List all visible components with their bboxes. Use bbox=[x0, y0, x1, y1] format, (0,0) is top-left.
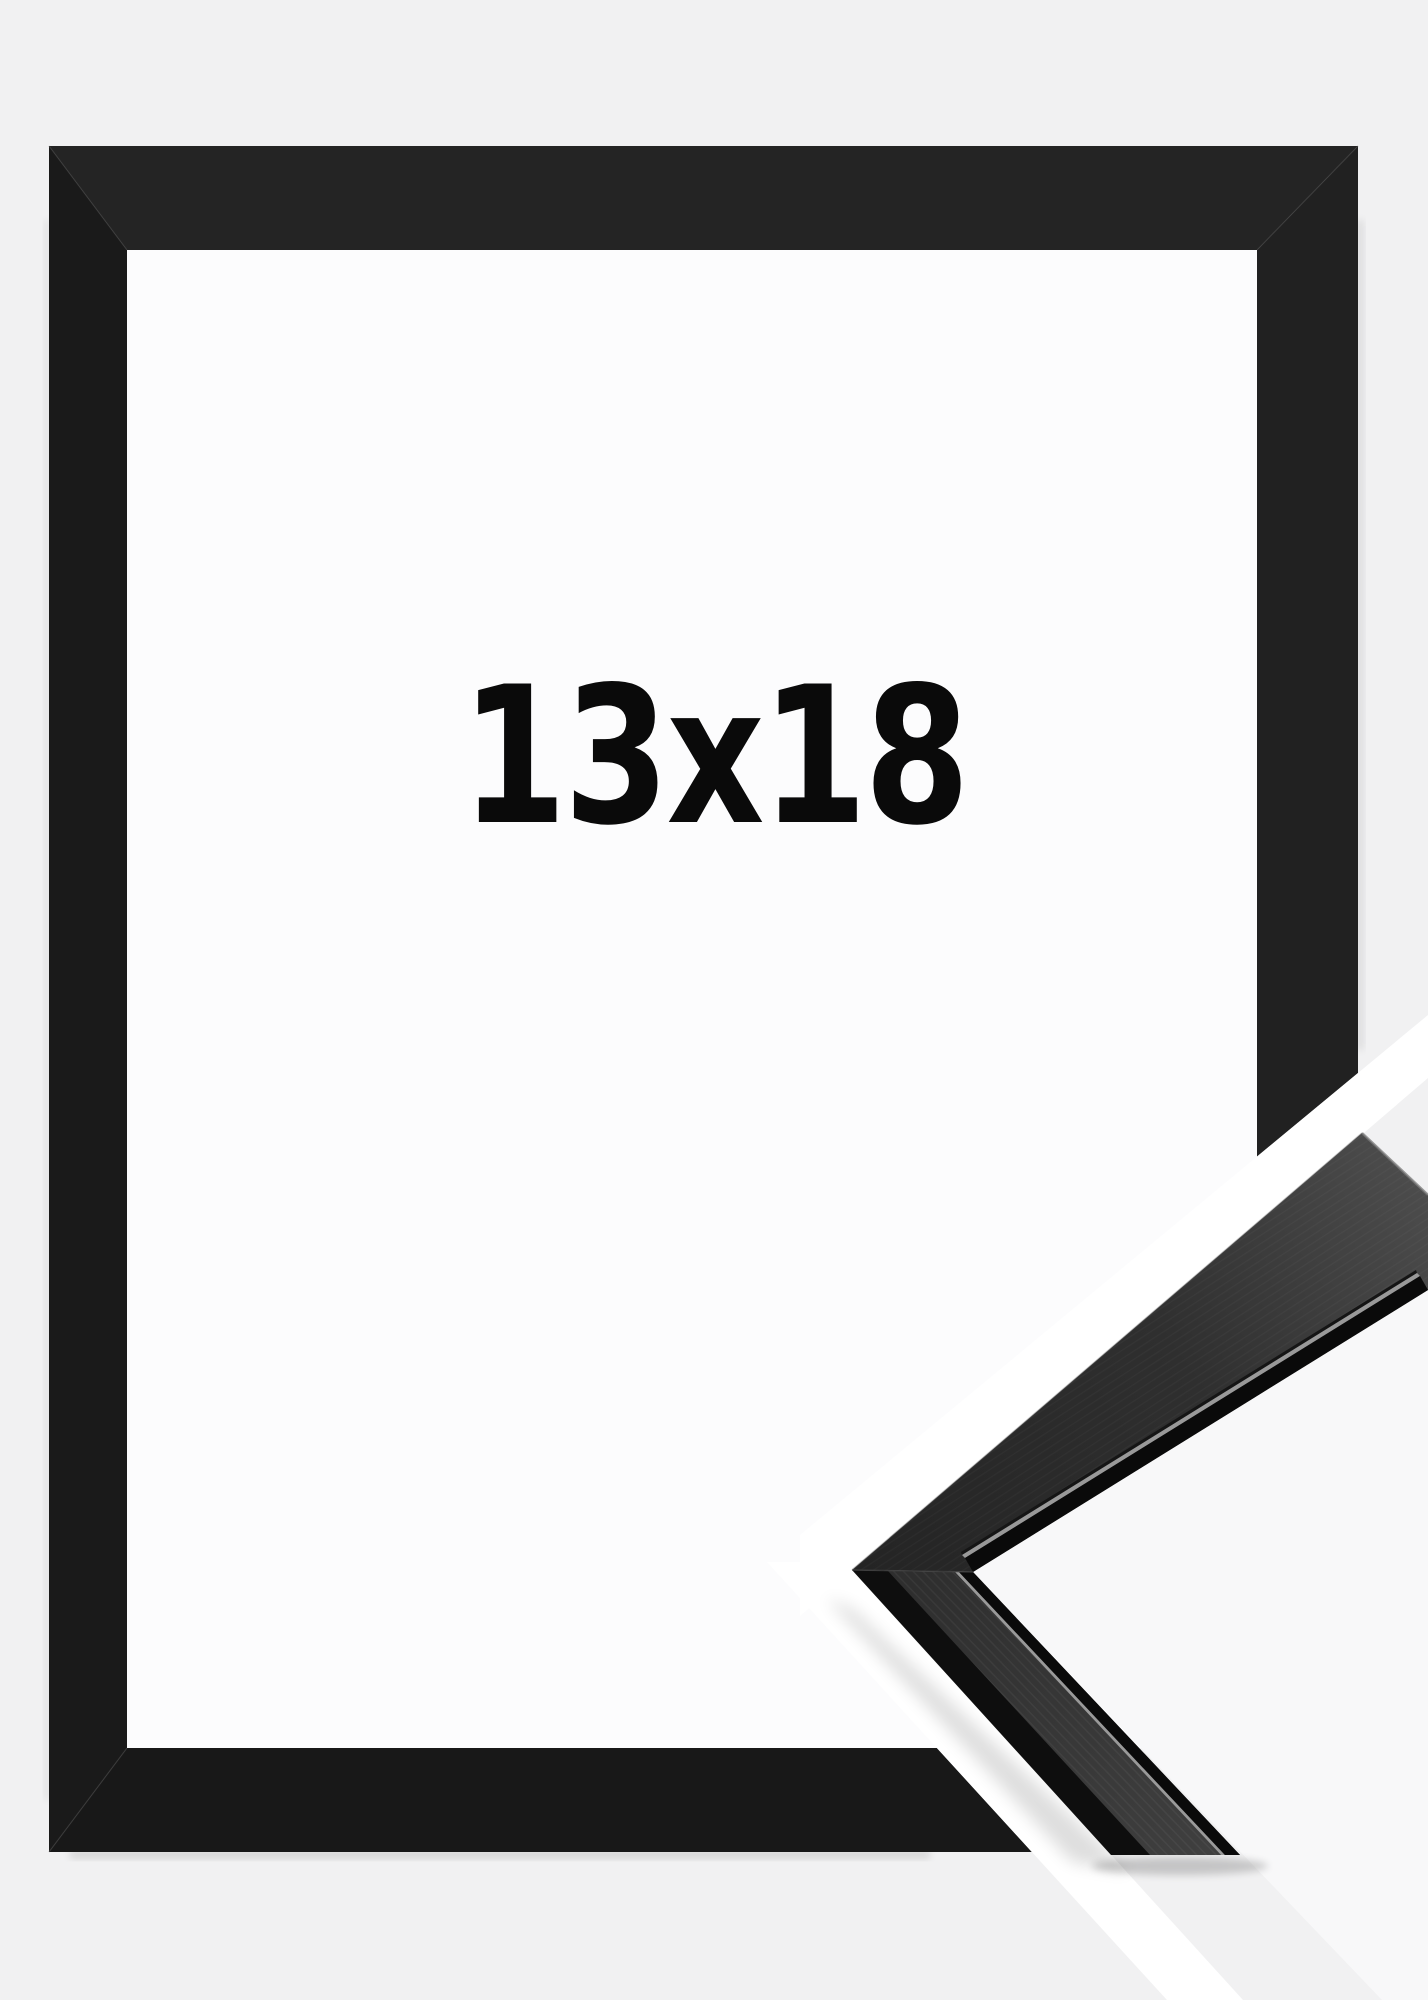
frame-left-bar bbox=[49, 146, 127, 1852]
product-photo-canvas bbox=[0, 0, 1428, 2000]
size-label: 13x18 bbox=[461, 662, 967, 852]
frame-top-bar bbox=[49, 146, 1358, 250]
product-photo: 13x18 bbox=[0, 0, 1428, 2000]
sample-tip-shadow bbox=[1092, 1857, 1268, 1875]
frame-bottom-shadow bbox=[70, 1851, 930, 1858]
